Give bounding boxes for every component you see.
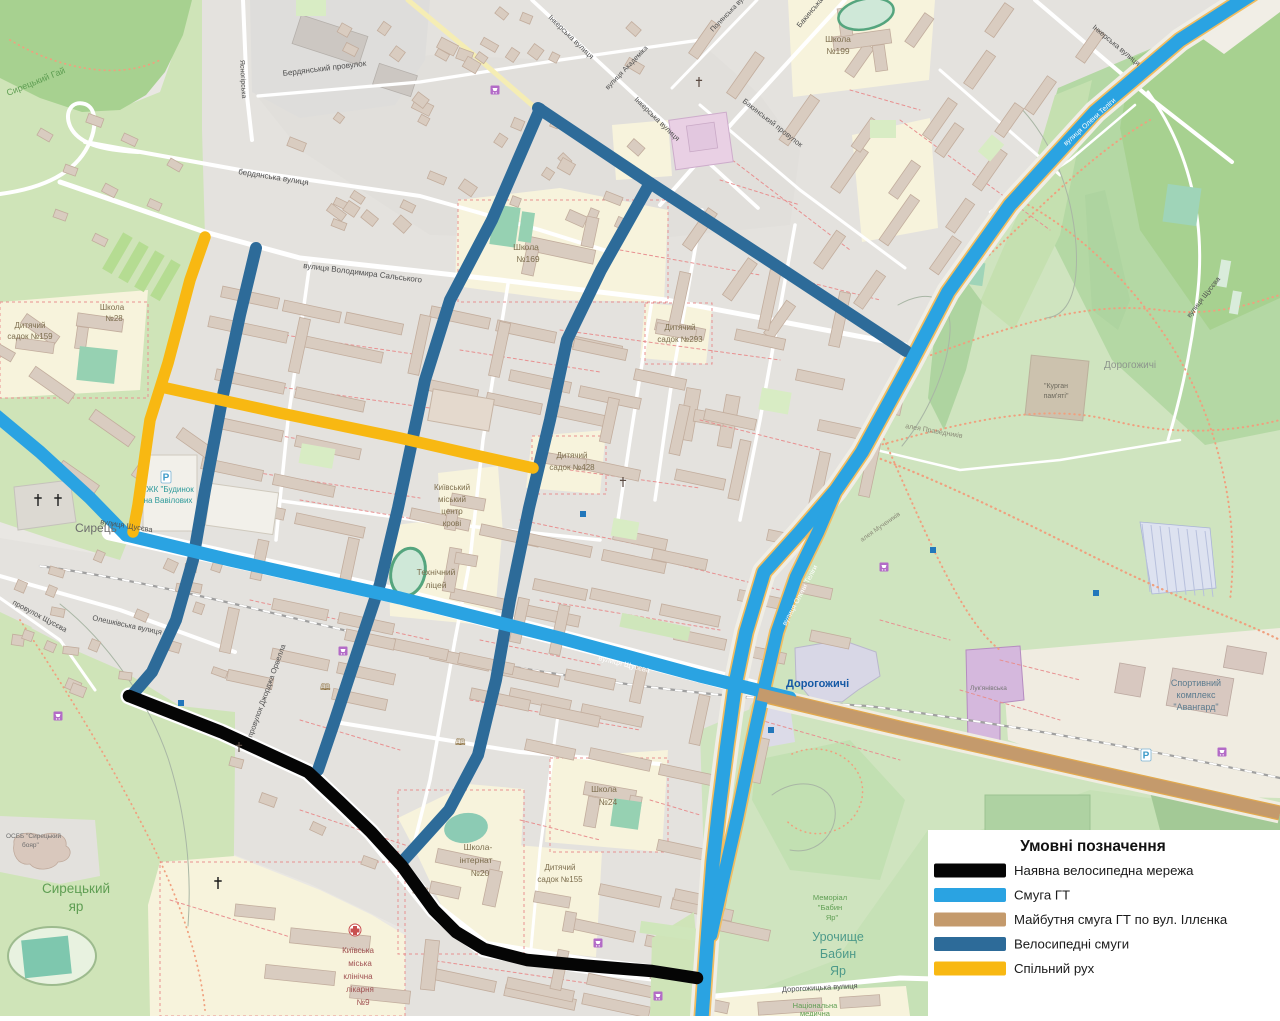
svg-text:ОСББ "Сирецький: ОСББ "Сирецький <box>6 832 62 840</box>
svg-text:міський: міський <box>438 495 466 504</box>
svg-text:Школа: Школа <box>591 784 617 794</box>
svg-text:Київський: Київський <box>434 483 470 492</box>
svg-text:"Авангард": "Авангард" <box>1173 702 1218 712</box>
svg-text:Спортивний: Спортивний <box>1171 678 1221 688</box>
svg-text:Наявна велосипедна мережа: Наявна велосипедна мережа <box>1014 863 1194 878</box>
svg-text:садок №159: садок №159 <box>7 332 53 341</box>
svg-text:міська: міська <box>348 959 372 968</box>
svg-text:Технічний: Технічний <box>417 567 456 577</box>
svg-text:Майбутня смуга ГТ по вул. Іллє: Майбутня смуга ГТ по вул. Іллєнка <box>1014 912 1228 927</box>
svg-text:на Вавілових: на Вавілових <box>144 496 193 505</box>
svg-text:клінічна: клінічна <box>343 972 373 981</box>
svg-text:Яр": Яр" <box>826 913 839 922</box>
svg-text:бояр": бояр" <box>22 841 39 849</box>
svg-text:🕮: 🕮 <box>455 737 466 747</box>
svg-text:Дитячий: Дитячий <box>557 451 588 460</box>
svg-text:Урочище: Урочище <box>812 930 864 944</box>
svg-text:№20: №20 <box>471 868 490 878</box>
svg-text:Бабин: Бабин <box>820 947 856 961</box>
svg-text:центр: центр <box>441 507 463 516</box>
svg-text:Сирецький: Сирецький <box>42 881 110 896</box>
svg-text:Дитячий: Дитячий <box>665 323 696 332</box>
svg-text:Р: Р <box>163 473 170 484</box>
svg-text:🕮: 🕮 <box>320 682 331 692</box>
svg-text:"Бабин: "Бабин <box>818 903 842 912</box>
svg-text:Сирець: Сирець <box>75 521 117 535</box>
svg-text:Школа: Школа <box>513 242 539 252</box>
svg-text:№169: №169 <box>516 254 540 264</box>
svg-text:Лук'янівська: Лук'янівська <box>970 684 1007 692</box>
svg-text:садок №155: садок №155 <box>537 875 583 884</box>
svg-text:ліцей: ліцей <box>425 580 446 590</box>
svg-text:садок №293: садок №293 <box>657 335 703 344</box>
svg-text:інтернат: інтернат <box>460 855 493 865</box>
svg-text:Умовні позначення: Умовні позначення <box>1020 838 1165 855</box>
svg-text:Велосипедні смуги: Велосипедні смуги <box>1014 936 1129 951</box>
svg-text:Дитячий: Дитячий <box>15 321 46 330</box>
svg-text:Дорогожичі: Дорогожичі <box>786 678 849 690</box>
svg-text:№9: №9 <box>356 998 370 1007</box>
svg-text:Київська: Київська <box>342 946 374 955</box>
svg-text:пам'яті": пам'яті" <box>1044 392 1069 400</box>
svg-text:Меморіал: Меморіал <box>813 893 847 902</box>
svg-text:Спільний рух: Спільний рух <box>1014 961 1095 976</box>
svg-text:Школа: Школа <box>100 303 125 312</box>
svg-text:Дитячий: Дитячий <box>545 863 576 872</box>
svg-text:лікарня: лікарня <box>346 985 374 994</box>
svg-text:Смуга ГТ: Смуга ГТ <box>1014 887 1070 902</box>
svg-text:№24: №24 <box>599 797 618 807</box>
svg-text:ЖК "Будинок: ЖК "Будинок <box>146 485 194 494</box>
svg-text:Яр: Яр <box>830 964 846 978</box>
svg-text:Р: Р <box>1143 751 1150 762</box>
svg-text:садок №428: садок №428 <box>549 463 595 472</box>
svg-text:яр: яр <box>69 899 84 914</box>
svg-text:Дорогожичі: Дорогожичі <box>1104 360 1156 371</box>
svg-text:№28: №28 <box>105 314 123 323</box>
svg-text:Школа: Школа <box>825 34 851 44</box>
svg-text:"Курган: "Курган <box>1044 383 1068 390</box>
svg-text:Школа-: Школа- <box>464 842 493 852</box>
svg-text:медична: медична <box>800 1009 831 1016</box>
svg-text:№199: №199 <box>826 46 850 56</box>
svg-text:комплекс: комплекс <box>1177 690 1216 700</box>
svg-text:крові: крові <box>443 519 462 528</box>
